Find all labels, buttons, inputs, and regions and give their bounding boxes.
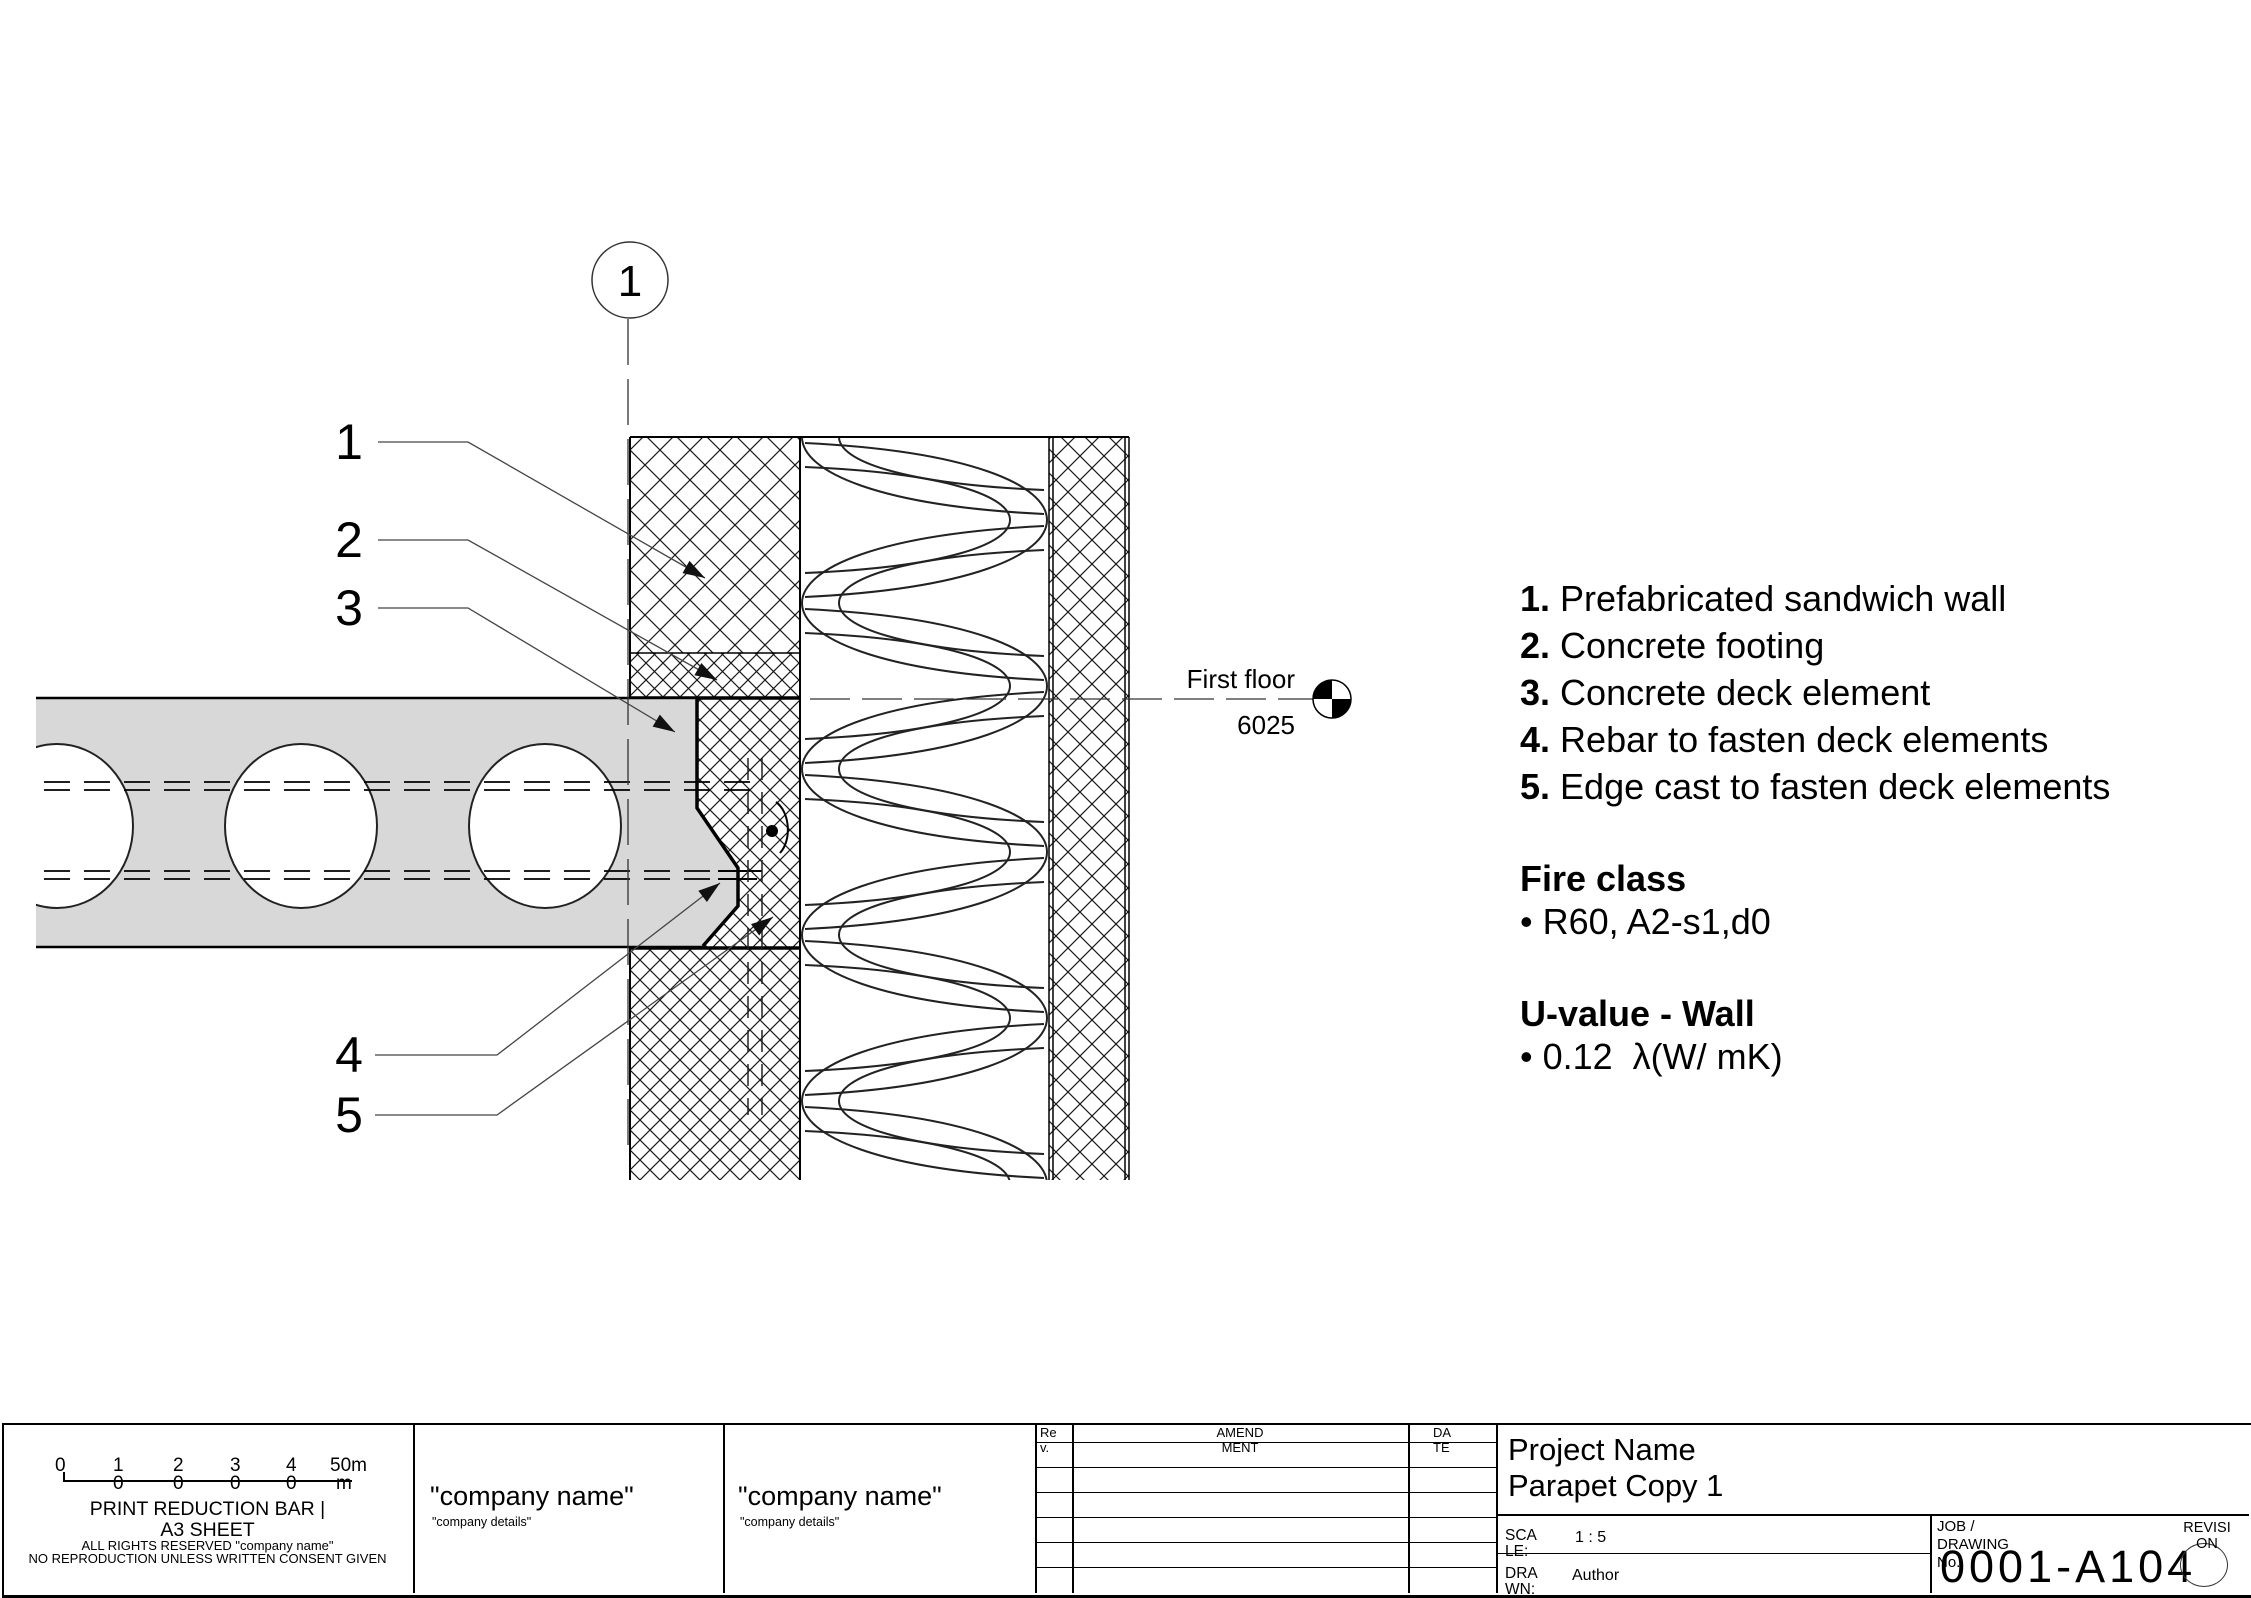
part-label-2: 2 <box>335 512 363 568</box>
drawn-value: Author <box>1572 1567 1619 1585</box>
project-divider <box>1930 1514 1932 1593</box>
amendment-row-line <box>1035 1517 1496 1518</box>
legend-item: 5. Edge cast to fasten deck elements <box>1520 766 2110 808</box>
callout-number: 1 <box>618 257 642 306</box>
amendment-row-line <box>1035 1542 1496 1543</box>
drawing-number: 0001-A104 <box>1940 1541 2170 1593</box>
level-name: First floor <box>1187 664 1296 694</box>
scale-tick-label: 0 <box>113 1473 124 1495</box>
scale-bar-tick <box>63 1472 65 1481</box>
legend-item-number: 2. <box>1520 625 1550 666</box>
amendment-col-rev: Rev. <box>1040 1426 1062 1455</box>
company-name: "company name" <box>738 1481 942 1512</box>
concrete-deck-element <box>0 698 800 948</box>
concrete-footing-hatch <box>630 653 800 698</box>
amendment-col-amendment: AMENDMENT <box>1212 1426 1268 1455</box>
title-block-divider <box>413 1423 415 1593</box>
outer-wythe-hatch <box>1049 437 1129 1180</box>
sheet-caption-1: PRINT REDUCTION BAR | <box>2 1498 413 1521</box>
amendment-col-date: DATE <box>1433 1426 1454 1455</box>
part-label-1: 1 <box>335 414 363 470</box>
sheet-caption-4: NO REPRODUCTION UNLESS WRITTEN CONSENT G… <box>2 1551 413 1566</box>
company-details: "company details" <box>740 1515 839 1529</box>
legend-item-text: Edge cast to fasten deck elements <box>1560 766 2110 807</box>
project-divider <box>1496 1553 1930 1554</box>
legend-item-text: Prefabricated sandwich wall <box>1560 578 2006 619</box>
company-details: "company details" <box>432 1515 531 1529</box>
legend-item-number: 4. <box>1520 719 1550 760</box>
project-name: Project Name <box>1508 1432 1696 1468</box>
scale-label: SCALE: <box>1505 1528 1543 1560</box>
legend-item-number: 3. <box>1520 672 1550 713</box>
legend-item-text: Concrete footing <box>1560 625 1824 666</box>
amendment-row-line <box>1035 1492 1496 1493</box>
title-block-divider <box>723 1423 725 1593</box>
legend-item-number: 1. <box>1520 578 1550 619</box>
part-label-5: 5 <box>335 1087 363 1143</box>
part-label-4: 4 <box>335 1027 363 1083</box>
level-elevation: 6025 <box>1237 710 1295 740</box>
sandwich-wall-section <box>630 437 1129 1180</box>
rebar-section-dot <box>766 825 778 837</box>
fire-class-heading: Fire class <box>1520 858 1686 900</box>
title-block-divider <box>1496 1423 1498 1593</box>
part-label-3: 3 <box>335 580 363 636</box>
legend-item-text: Concrete deck element <box>1560 672 1930 713</box>
company-name: "company name" <box>430 1481 634 1512</box>
amendment-row-line <box>1035 1567 1496 1568</box>
drawing-title: Parapet Copy 1 <box>1508 1468 1723 1504</box>
scale-tick-label: 0 <box>230 1473 241 1495</box>
revision-label: REVISION <box>2179 1521 2235 1552</box>
section-callout: 1 <box>592 242 668 318</box>
legend-item: 3. Concrete deck element <box>1520 672 1930 714</box>
legend-item-text: Rebar to fasten deck elements <box>1560 719 2048 760</box>
scale-tick-label: 0 <box>286 1473 297 1495</box>
u-value-value: • 0.12 λ(W/ mK) <box>1520 1036 1783 1078</box>
legend-item-number: 5. <box>1520 766 1550 807</box>
u-value-heading: U-value - Wall <box>1520 993 1755 1035</box>
hollow-core <box>225 744 377 908</box>
drawn-label: DRAWN: <box>1505 1566 1547 1598</box>
legend-item: 4. Rebar to fasten deck elements <box>1520 719 2048 761</box>
scale-tick-label: m <box>336 1473 352 1495</box>
legend-item: 1. Prefabricated sandwich wall <box>1520 578 2006 620</box>
scale-bar-line <box>63 1480 352 1482</box>
scale-value: 1 : 5 <box>1575 1529 1606 1547</box>
drawing-sheet: First floor 6025 1 1 2 3 4 <box>0 0 2251 1598</box>
scale-tick-label: 0 <box>173 1473 184 1495</box>
legend-item: 2. Concrete footing <box>1520 625 1824 667</box>
project-divider <box>1496 1514 2249 1516</box>
hollow-core <box>469 744 621 908</box>
insulation-layer <box>800 437 1049 1180</box>
amendment-row-line <box>1035 1467 1496 1468</box>
fire-class-value: • R60, A2-s1,d0 <box>1520 901 1771 943</box>
